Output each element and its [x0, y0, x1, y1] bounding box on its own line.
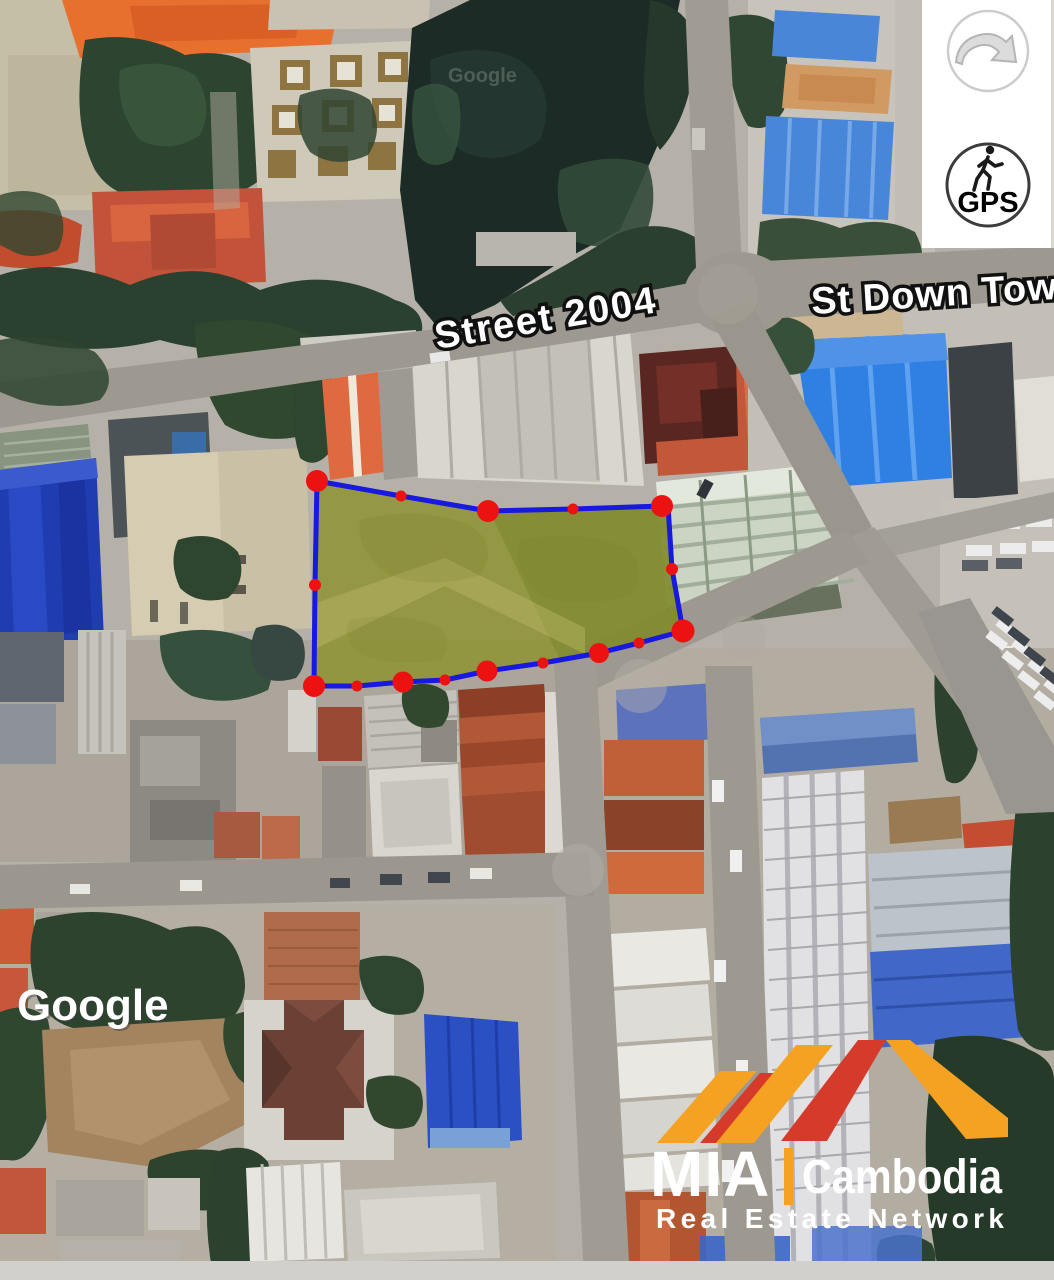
svg-text:MIA: MIA — [650, 1138, 770, 1210]
svg-text:GPS: GPS — [957, 187, 1018, 219]
svg-text:Real Estate Network: Real Estate Network — [656, 1203, 1004, 1234]
svg-text:Google: Google — [448, 65, 517, 87]
svg-text:Cambodia: Cambodia — [802, 1151, 1002, 1204]
svg-text:Google: Google — [17, 981, 169, 1030]
